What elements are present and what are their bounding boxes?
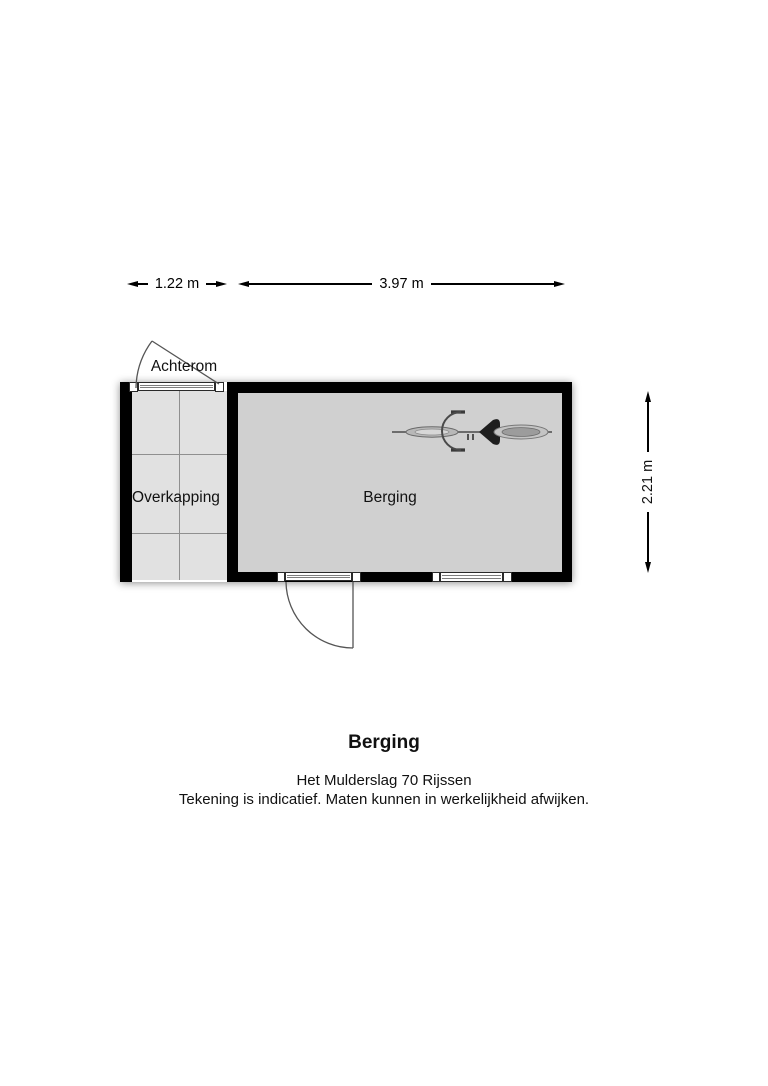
berging-window: [440, 572, 503, 582]
dimension-label: 2.21 m: [640, 460, 656, 504]
wall-top: [227, 382, 572, 393]
dimension-berging-depth: 2.21 m: [640, 391, 656, 573]
dimension-line: [647, 402, 649, 452]
dimension-line: [206, 283, 216, 285]
dimension-berging-width: 3.97 m: [238, 276, 565, 292]
overkapping-label: Overkapping: [126, 489, 226, 507]
page-title: Berging: [0, 732, 768, 754]
arrow-left-icon: [127, 281, 138, 287]
dimension-line: [249, 283, 372, 285]
window-post: [432, 572, 440, 582]
disclaimer-line: Tekening is indicatief. Maten kunnen in …: [0, 791, 768, 808]
paving-grid-line: [132, 454, 227, 455]
arrow-down-icon: [645, 562, 651, 573]
wall-right: [562, 382, 572, 582]
dimension-line: [647, 512, 649, 562]
window-post: [503, 572, 512, 582]
achterom-gate: [138, 382, 215, 391]
berging-door-threshold: [285, 572, 352, 581]
wall-left: [120, 382, 132, 582]
arrow-right-icon: [554, 281, 565, 287]
gate-post: [129, 382, 138, 392]
arrow-right-icon: [216, 281, 227, 287]
achterom-label: Achterom: [139, 358, 229, 376]
berging-room-label: Berging: [340, 489, 440, 507]
dimension-label: 3.97 m: [372, 276, 430, 292]
dimension-overkapping-width: 1.22 m: [127, 276, 227, 292]
gate-post: [215, 382, 224, 392]
dimension-line: [431, 283, 554, 285]
arrow-left-icon: [238, 281, 249, 287]
paving-grid-line: [179, 391, 180, 580]
overkapping-floor: [132, 391, 227, 580]
dimension-label-wrap: 2.21 m: [640, 452, 656, 512]
arrow-up-icon: [645, 391, 651, 402]
floor-plan: [120, 382, 572, 582]
door-post: [352, 572, 361, 582]
berging-door-swing-icon: [286, 582, 353, 648]
door-post: [277, 572, 285, 582]
wall-divider: [227, 382, 238, 582]
floorplan-page: 1.22 m 3.97 m 2.21 m: [0, 0, 768, 1086]
address-line: Het Mulderslag 70 Rijssen: [0, 772, 768, 789]
paving-grid-line: [132, 533, 227, 534]
berging-floor: [238, 393, 562, 572]
dimension-line: [138, 283, 148, 285]
dimension-label: 1.22 m: [148, 276, 206, 292]
